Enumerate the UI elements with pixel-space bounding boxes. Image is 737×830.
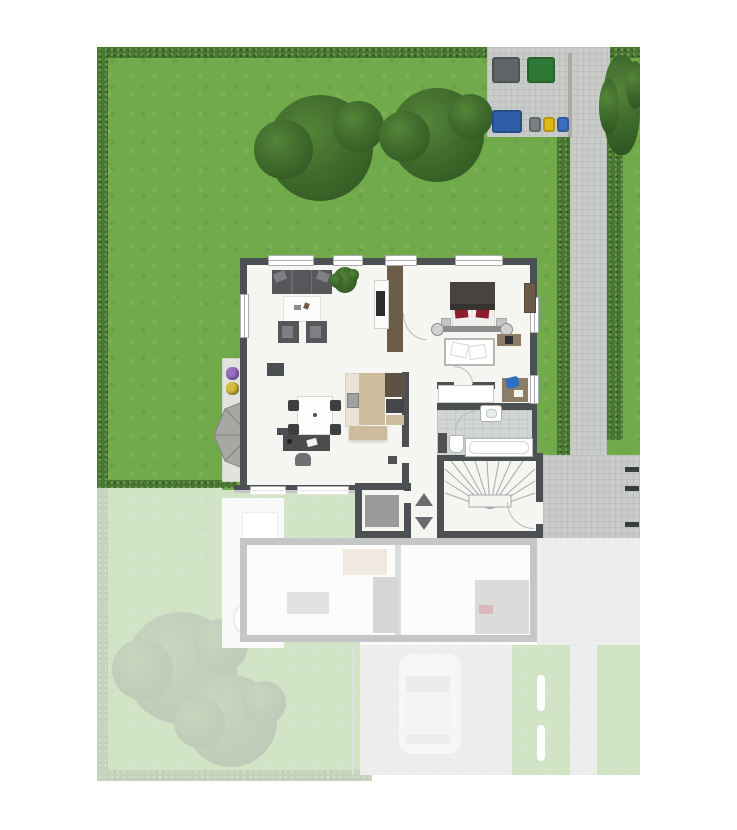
window-right-hall [530,375,539,404]
fade-overlay-left [97,488,222,538]
utility-box [388,456,397,464]
kitchen-counter-low [386,415,404,425]
window-top-4 [455,255,503,266]
flower-pot-yellow [226,382,239,395]
bed-foot-strip [450,304,495,310]
dining-table [297,396,333,435]
storage-door-gap [404,491,411,503]
armchair-1-seat [282,326,293,338]
shelf-end-left [431,323,444,336]
tv-screen [376,291,385,316]
dining-chair-4 [330,424,341,435]
bush-by-path [603,55,640,155]
kitchen-wall-stub [402,463,409,486]
sink-basin [486,409,497,418]
floor-plan-render: { "scene": { "type": "top-down 3D floor … [0,0,737,830]
armchair-2-seat [310,326,321,338]
hedge-path-right [607,137,623,440]
kitchen-tall-cabinet [385,373,405,397]
site-plan [97,47,640,785]
plant-icon [333,267,357,293]
armchair-1 [278,321,299,343]
dining-chair-2 [330,400,341,411]
bin-green [527,57,555,83]
crib-pillow-1 [450,341,470,358]
kitchen-island [359,373,385,425]
dresser-item [505,336,513,344]
arrow-down-icon [415,517,433,530]
bin-yellow [543,117,555,132]
bathroom-sink [480,405,502,422]
hedge-left [97,47,108,491]
tv-divider-wall [387,263,403,352]
desk-chair [295,453,311,466]
room-divider-shelf [435,326,505,332]
bathtub-inner [469,441,529,454]
hedge-path-left [557,137,570,455]
dining-chair-1 [288,400,299,411]
bin-blue [557,117,569,132]
bin-small-gray [529,117,541,132]
window-top-3 [385,255,417,266]
hall-sideboard [438,385,494,403]
crib-pillow-2 [468,344,487,360]
step-mark-3 [625,522,639,527]
step-mark-1 [625,467,639,472]
arrow-up-icon [415,493,433,506]
rug [283,296,321,322]
double-bed [450,282,495,332]
garden-path [570,137,607,455]
sofa-cushion-right [316,270,330,283]
storage-elevator-core [365,495,399,527]
kitchen-oven [386,399,404,413]
terrace-wall-stub [267,363,284,376]
desk-lamp [287,439,292,444]
desk [283,435,330,451]
flower-pot-purple [226,367,239,380]
bathtub [465,438,533,457]
fade-overlay-mid [222,490,355,538]
annex-bottom-wall [437,531,543,538]
kitchen-sink [347,393,359,408]
wardrobe [524,283,536,313]
kitchen-peninsula [349,426,387,440]
crib [444,338,495,366]
tree-2 [390,88,484,182]
sofa [272,270,332,294]
tree-1 [267,95,373,201]
bathroom-cabinet [438,433,447,453]
dresser [497,334,521,346]
office-papers [514,390,523,397]
window-top-2 [333,255,363,266]
bin-gray [492,57,520,83]
window-left [240,294,249,338]
kitchen-block [345,372,405,426]
rug-item-2 [303,302,310,309]
step-mark-2 [625,486,639,491]
table-center-dot [313,413,317,417]
sofa-cushion-left [273,270,287,283]
armchair-2 [306,321,327,343]
desk-papers [306,438,317,447]
toilet [449,435,464,453]
rug-item-1 [294,305,301,310]
container-blue [492,110,522,133]
window-top-1 [268,255,314,266]
fade-overlay-bottom [97,538,640,785]
dining-chair-3 [288,424,299,435]
